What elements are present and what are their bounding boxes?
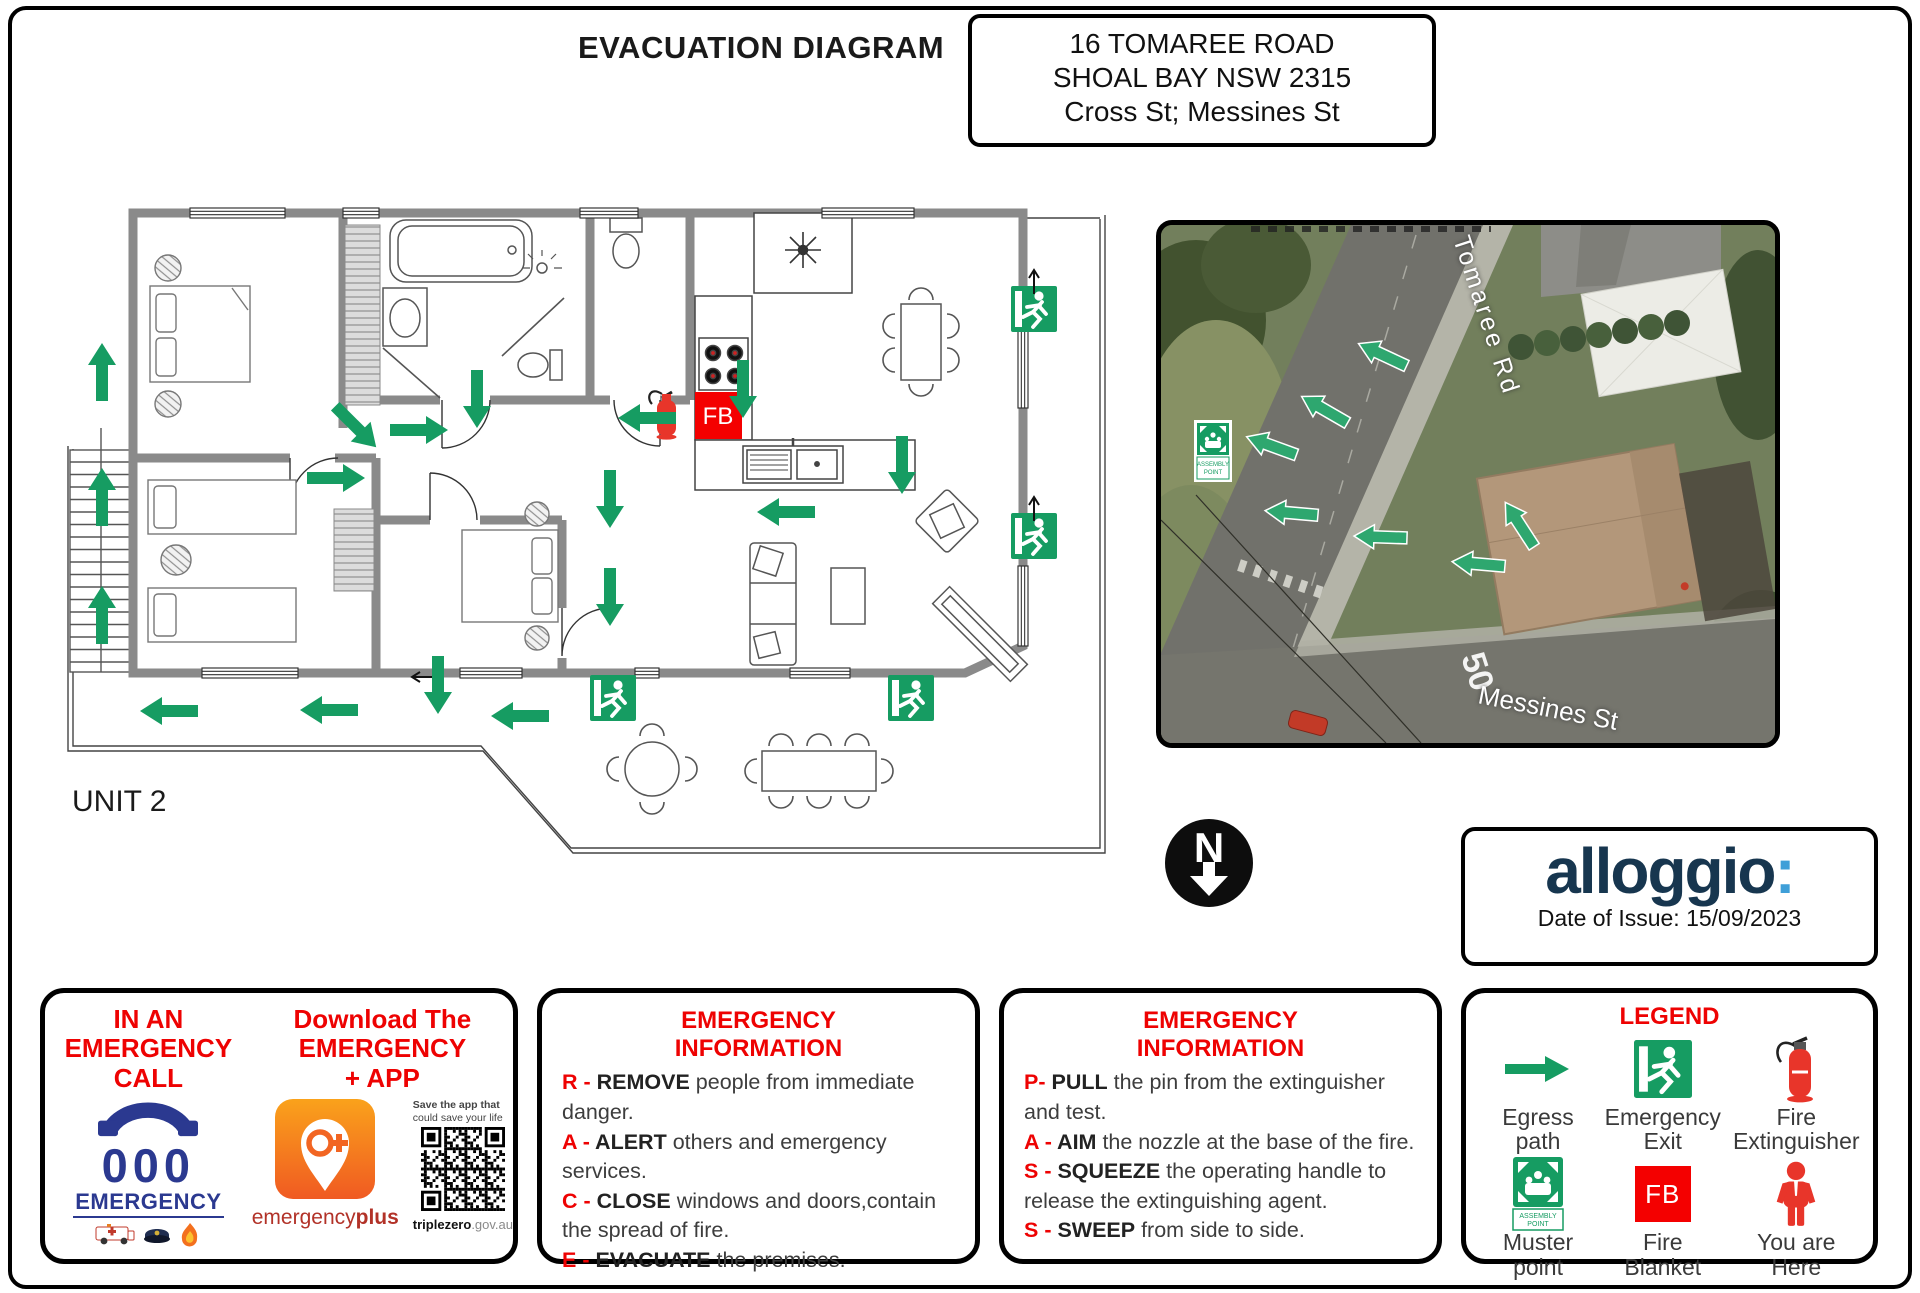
qr-note-1: Save the app that — [413, 1099, 513, 1112]
qr-note-2: could save your life — [413, 1112, 513, 1125]
page-title: EVACUATION DIAGRAM — [578, 30, 944, 66]
address-box: 16 TOMAREE ROAD SHOAL BAY NSW 2315 Cross… — [968, 14, 1436, 147]
kitchen — [695, 213, 915, 490]
legend-muster-point: ASSEMBLY POINT Musterpoint — [1480, 1158, 1596, 1280]
svg-text:POINT: POINT — [1527, 1221, 1549, 1228]
fire-extinguisher-icon — [1765, 1034, 1827, 1104]
brand-logo: alloggio: — [1465, 839, 1874, 903]
emergency-call-panel: IN AN EMERGENCY CALL 000 EMERGENCY — [40, 988, 518, 1264]
legend-title: LEGEND — [1466, 1003, 1873, 1031]
ambulance-icon — [95, 1222, 135, 1246]
armchair — [914, 488, 979, 553]
emergency-info-pass-panel: EMERGENCY INFORMATION P- PULL the pin fr… — [999, 988, 1442, 1264]
unit-label: UNIT 2 — [72, 785, 166, 819]
call-000-column: IN AN EMERGENCY CALL 000 EMERGENCY — [45, 993, 252, 1259]
qr-site: triplezero.gov.au — [413, 1217, 513, 1232]
race-title-1: EMERGENCY — [542, 1007, 975, 1035]
qr-code — [421, 1127, 505, 1211]
call-title-3: CALL — [45, 1064, 252, 1093]
triple-zero-caption: EMERGENCY — [73, 1189, 223, 1218]
legend-panel: LEGEND Egresspath EmergencyExit — [1461, 988, 1878, 1264]
race-title-2: INFORMATION — [542, 1035, 975, 1063]
triple-zero: 000 — [45, 1142, 252, 1189]
bedroom1-furniture — [150, 255, 250, 417]
assembly-sign-text1: ASSEMBLY — [1197, 462, 1229, 468]
date-of-issue: Date of Issue: 15/09/2023 — [1465, 905, 1874, 932]
location-map: ASSEMBLY POINT Tomaree Rd 50 Messines St — [1156, 220, 1780, 748]
brand-name: alloggio — [1545, 835, 1774, 907]
north-compass-icon: N — [1162, 816, 1256, 910]
qr-block: Save the app that could save your life t… — [413, 1099, 513, 1232]
call-title-1: IN AN — [45, 1005, 252, 1034]
fire-icon — [179, 1222, 201, 1248]
svg-text:ASSEMBLY: ASSEMBLY — [1519, 1213, 1557, 1220]
emergency-exit-sign — [590, 675, 636, 721]
coffee-table — [831, 568, 865, 624]
emergency-info-race-panel: EMERGENCY INFORMATION R - REMOVE people … — [537, 988, 980, 1264]
floor-plan: FB — [50, 168, 1140, 870]
call-title-2: EMERGENCY — [45, 1034, 252, 1063]
assembly-sign-text2: POINT — [1204, 470, 1223, 476]
fridge-snowflake-icon — [785, 232, 821, 268]
egress-arrow-icon — [1505, 1055, 1571, 1083]
exit-sign-icon — [1634, 1040, 1692, 1098]
emergency-plus-icon — [275, 1099, 375, 1199]
brand-colon: : — [1775, 835, 1794, 907]
outdoor-furniture — [607, 724, 893, 814]
emergency-exit-sign — [888, 675, 934, 721]
evacuation-diagram-page: EVACUATION DIAGRAM 16 TOMAREE ROAD SHOAL… — [0, 0, 1920, 1293]
police-hat-icon — [143, 1222, 171, 1246]
you-are-here-icon — [1769, 1159, 1823, 1229]
fire-blanket-label: FB — [703, 403, 734, 430]
legend-fire-blanket: FB FireBlanket — [1596, 1158, 1729, 1280]
bedroom2-furniture — [148, 480, 296, 642]
app-column: Download The EMERGENCY + APP — [252, 993, 513, 1259]
legend-egress-path: Egresspath — [1480, 1033, 1596, 1155]
pass-title-1: EMERGENCY — [1004, 1007, 1437, 1035]
satellite-map: ASSEMBLY POINT Tomaree Rd 50 Messines St — [1161, 225, 1775, 743]
toilet-side — [518, 350, 562, 380]
app-title-2: EMERGENCY — [252, 1034, 513, 1063]
brand-box: alloggio: Date of Issue: 15/09/2023 — [1461, 827, 1878, 966]
race-body: R - REMOVE people from immediate danger.… — [542, 1062, 975, 1276]
app-title-3: + APP — [252, 1064, 513, 1093]
legend-fire-extinguisher: FireExtinguisher — [1730, 1033, 1863, 1155]
legend-you-are-here: You areHere — [1730, 1158, 1863, 1280]
assembly-point-sign: ASSEMBLY POINT — [1194, 420, 1232, 482]
pass-title-2: INFORMATION — [1004, 1035, 1437, 1063]
address-line1: 16 TOMAREE ROAD — [972, 27, 1432, 61]
legend-emergency-exit: EmergencyExit — [1596, 1033, 1729, 1155]
address-line2: SHOAL BAY NSW 2315 — [972, 61, 1432, 95]
bathroom-fixtures — [383, 218, 642, 380]
emergency-plus-app: emergencyplus — [252, 1099, 399, 1230]
muster-point-icon: ASSEMBLY POINT — [1510, 1156, 1566, 1232]
address-line3: Cross St; Messines St — [972, 95, 1432, 129]
fire-blanket-icon: FB — [1635, 1166, 1691, 1222]
app-title-1: Download The — [252, 1005, 513, 1034]
pass-body: P- PULL the pin from the extinguisher an… — [1004, 1062, 1437, 1246]
sofa — [750, 543, 796, 665]
toilet-top — [610, 218, 642, 268]
phone-handset-icon — [90, 1097, 206, 1137]
app-caption: emergencyplus — [252, 1206, 399, 1230]
